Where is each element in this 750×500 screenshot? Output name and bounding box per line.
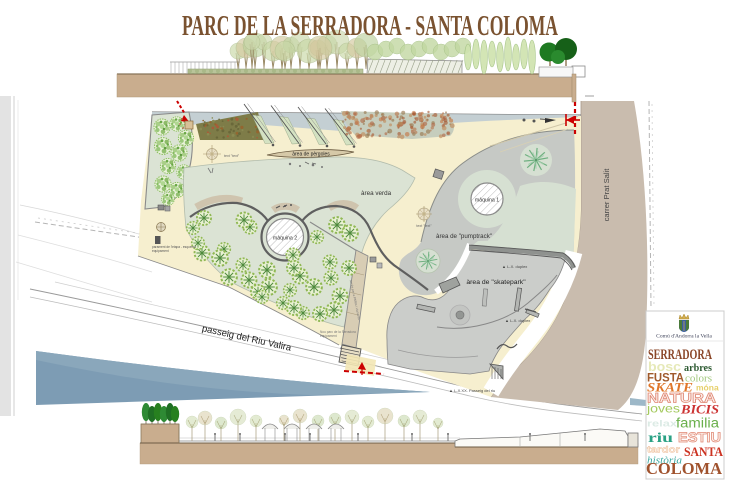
svg-text:COLOMA: COLOMA [646, 459, 723, 478]
svg-text:▲ L-X. duplex: ▲ L-X. duplex [502, 264, 527, 269]
svg-text:àrea verda: àrea verda [361, 190, 392, 197]
svg-text:ESTIU: ESTIU [678, 430, 721, 445]
svg-text:arbres: arbres [684, 362, 713, 374]
svg-text:carrer Prat Salit: carrer Prat Salit [602, 168, 611, 222]
svg-text:equipament: equipament [152, 249, 169, 253]
svg-text:text "text": text "text" [416, 224, 432, 228]
svg-text:PARC DE LA SERRADORA - SANTA C: PARC DE LA SERRADORA - SANTA COLOMA [182, 11, 558, 42]
svg-text:màquina 2: màquina 2 [273, 236, 297, 242]
svg-text:BICIS: BICIS [680, 403, 719, 417]
svg-text:àrea de "pumptrack": àrea de "pumptrack" [436, 233, 492, 240]
svg-text:▲ L-X. duplex: ▲ L-X. duplex [505, 318, 530, 323]
svg-text:àrea de "skatepark": àrea de "skatepark" [466, 279, 526, 286]
svg-text:tardor: tardor [647, 445, 680, 456]
svg-text:text "text": text "text" [224, 154, 240, 158]
svg-text:SANTA: SANTA [684, 444, 724, 459]
svg-text:Comú d'Andorra la Vella: Comú d'Andorra la Vella [656, 334, 712, 340]
svg-text:equipament: equipament [320, 334, 337, 338]
svg-text:joves: joves [646, 404, 681, 416]
svg-text:familia: familia [676, 416, 720, 431]
svg-text:relax: relax [647, 419, 678, 430]
svg-text:▲ L-X.XX. Passeig del riu: ▲ L-X.XX. Passeig del riu [449, 388, 495, 393]
svg-text:àrea de pèrgoles: àrea de pèrgoles [292, 152, 330, 158]
svg-text:màquina 1: màquina 1 [475, 198, 499, 204]
